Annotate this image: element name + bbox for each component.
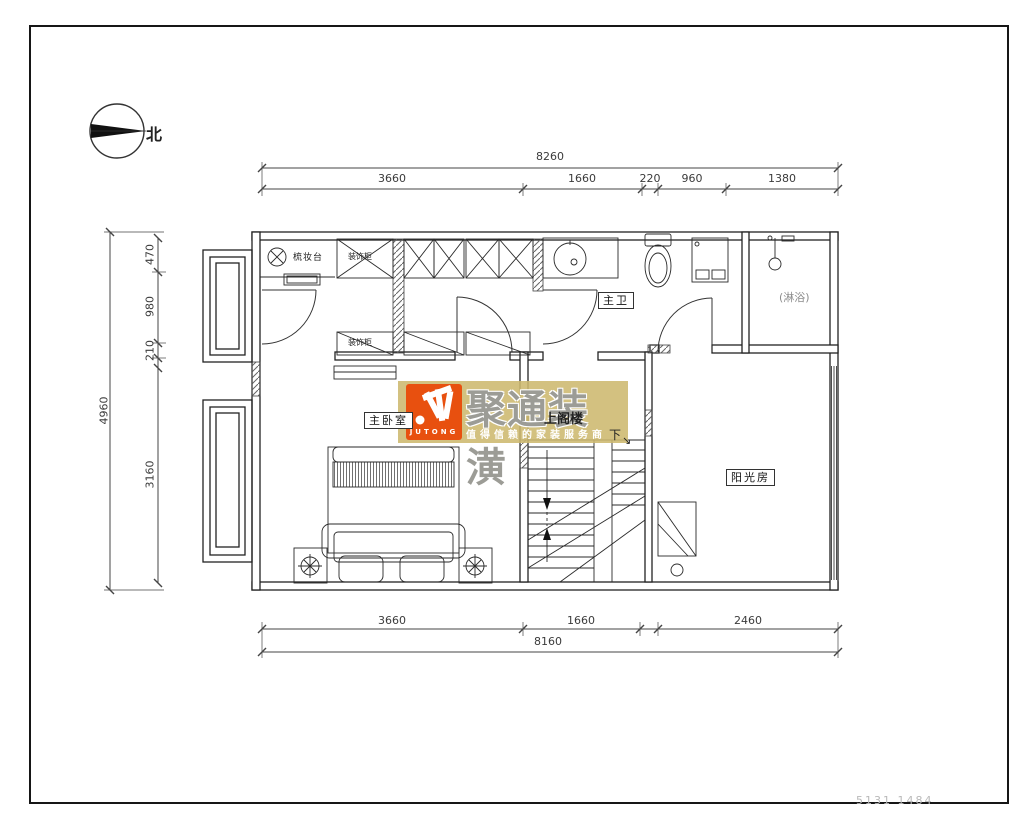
- dim-left-seg-4: 3160: [144, 451, 157, 499]
- stairs-down-arrow-icon: ↘: [622, 434, 631, 447]
- dim-top-seg-3: 220: [634, 172, 666, 185]
- logo-brand-en: JUTONG: [408, 428, 460, 436]
- floorplan-page: JUTONG 聚通装潢 值得信赖的家装服务商 北 主卫 主卧室 阳光房 上阁楼 …: [0, 0, 1024, 819]
- basin: [543, 238, 618, 278]
- dim-left-seg-1: 470: [144, 231, 157, 279]
- room-label-master-bath: 主卫: [598, 292, 634, 309]
- logo-tagline: 值得信赖的家装服务商: [466, 426, 626, 441]
- dim-top-seg-1: 3660: [362, 172, 422, 185]
- dim-bottom-seg-1: 3660: [362, 614, 422, 627]
- north-compass-icon: [90, 104, 146, 158]
- dim-top-overall: 8260: [520, 150, 580, 163]
- dim-bottom-seg-3: 2460: [718, 614, 778, 627]
- room-label-sunroom: 阳光房: [726, 469, 775, 486]
- sunroom-furniture: [658, 502, 696, 576]
- dim-left-seg-2: 980: [144, 283, 157, 331]
- label-dressing-table: 梳妆台: [293, 250, 323, 263]
- dim-bottom-seg-2: 1660: [551, 614, 611, 627]
- dim-top-seg-4: 960: [676, 172, 708, 185]
- doors: [262, 290, 712, 352]
- dim-left-seg-3: 210: [144, 327, 157, 375]
- dim-left-overall: 4960: [98, 387, 111, 435]
- watermark-text: 5131 1484: [856, 794, 934, 807]
- north-label: 北: [146, 121, 162, 145]
- label-shower: (淋浴): [779, 289, 810, 305]
- washer-cabinet: [692, 238, 728, 282]
- logo-mark: JUTONG: [406, 384, 462, 440]
- label-stairs-down: 下: [609, 426, 621, 443]
- shower-fixture-icon: [768, 236, 794, 270]
- toilet-icon: [645, 234, 671, 287]
- dim-top-seg-5: 1380: [752, 172, 812, 185]
- dim-top-seg-2: 1660: [552, 172, 612, 185]
- logo-band: JUTONG 聚通装潢 值得信赖的家装服务商: [398, 381, 628, 443]
- bay-windows: [203, 250, 252, 562]
- label-cabinet-top: 装饰柜: [348, 251, 372, 262]
- label-attic-stairs: 上阁楼: [544, 408, 583, 427]
- label-cabinet-bottom: 装饰柜: [348, 337, 372, 348]
- dim-bottom-overall: 8160: [518, 635, 578, 648]
- room-label-master-bedroom: 主卧室: [364, 412, 413, 429]
